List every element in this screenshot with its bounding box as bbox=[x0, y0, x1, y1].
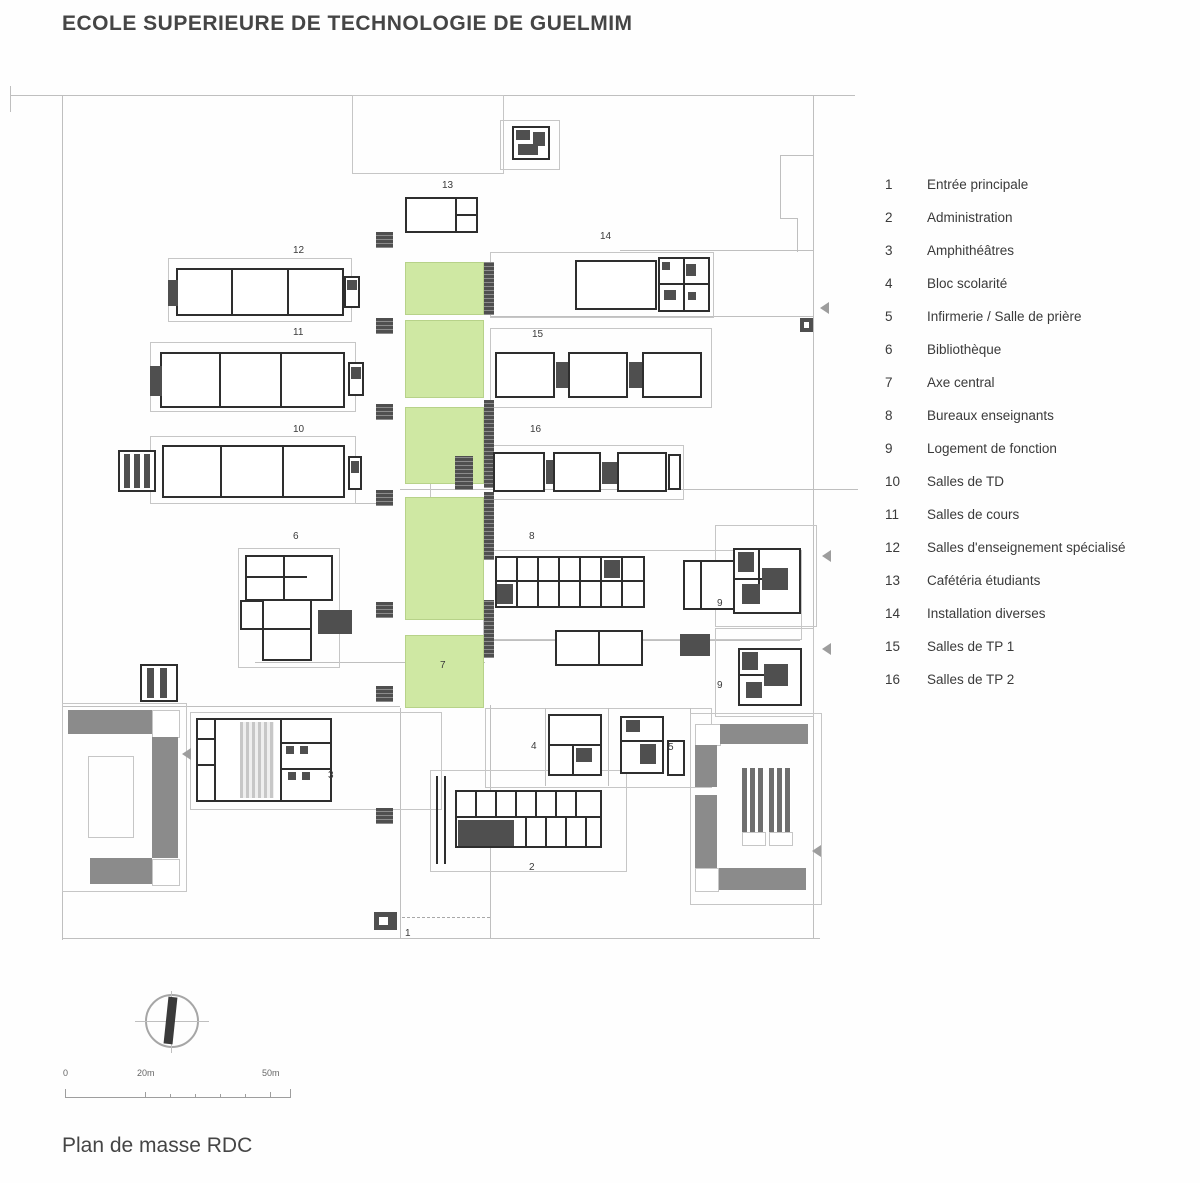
building-16-module bbox=[553, 452, 601, 492]
building-9a-room bbox=[738, 552, 754, 572]
step-line bbox=[780, 155, 781, 219]
building-6-dark-room bbox=[318, 610, 352, 634]
legend: 1Entrée principale 2Administration 3Amph… bbox=[885, 168, 1185, 696]
legend-item-label: Logement de fonction bbox=[927, 441, 1057, 456]
building-9a-room bbox=[742, 584, 760, 604]
legend-item-label: Salles d'enseignement spécialisé bbox=[927, 540, 1125, 555]
east-structure-bar bbox=[718, 868, 806, 890]
building-16-link bbox=[546, 460, 553, 484]
building-3-wall bbox=[282, 742, 330, 744]
entrance-gate-center bbox=[379, 917, 388, 925]
legend-item: 15Salles de TP 1 bbox=[885, 630, 1185, 663]
building-2-wall bbox=[457, 816, 600, 818]
building-label-11: 11 bbox=[293, 327, 303, 338]
building-5-room bbox=[626, 720, 640, 732]
entrance-dashed-line bbox=[402, 917, 490, 918]
building-14-room bbox=[664, 290, 676, 300]
scale-label-mid: 20m bbox=[137, 1068, 155, 1078]
building-8-wall bbox=[621, 558, 623, 606]
building-label-15: 15 bbox=[532, 329, 543, 340]
building-label-14: 14 bbox=[600, 231, 611, 242]
building-2-wall bbox=[515, 792, 517, 816]
legend-item-label: Salles de TD bbox=[927, 474, 1004, 489]
kiosk-bar bbox=[160, 668, 167, 698]
building-11-wall bbox=[280, 354, 282, 406]
legend-item-label: Bibliothèque bbox=[927, 342, 1001, 357]
legend-item-number: 6 bbox=[885, 342, 907, 357]
legend-item-label: Amphithéâtres bbox=[927, 243, 1014, 258]
building-label-7: 7 bbox=[440, 660, 446, 671]
scale-tick bbox=[270, 1092, 271, 1097]
east-structure-corner bbox=[695, 868, 719, 892]
building-12-core-fill bbox=[347, 280, 357, 290]
building-2-wall bbox=[495, 792, 497, 816]
building-15-module bbox=[495, 352, 555, 398]
building-label-16: 16 bbox=[530, 424, 541, 435]
building-3-wall bbox=[198, 738, 214, 740]
triangle-marker-icon bbox=[820, 302, 829, 314]
building-label-13: 13 bbox=[442, 180, 453, 191]
building-9a-room bbox=[762, 568, 788, 590]
scale-tick bbox=[290, 1089, 291, 1097]
building-8-wall bbox=[537, 558, 539, 606]
building-10-core-fill bbox=[351, 461, 359, 473]
west-structure-bar bbox=[152, 737, 178, 858]
legend-item: 11Salles de cours bbox=[885, 498, 1185, 531]
legend-item: 12Salles d'enseignement spécialisé bbox=[885, 531, 1185, 564]
building-6-room bbox=[240, 600, 264, 630]
step-line bbox=[797, 218, 798, 252]
legend-item-label: Salles de cours bbox=[927, 507, 1019, 522]
building-3-wall bbox=[280, 720, 282, 800]
legend-item-number: 5 bbox=[885, 309, 907, 324]
building-3-wall bbox=[282, 768, 330, 770]
building-8-wall bbox=[558, 558, 560, 606]
legend-item: 10Salles de TD bbox=[885, 465, 1185, 498]
building-2-wall bbox=[545, 818, 547, 846]
axis-node-square bbox=[376, 602, 393, 618]
step-line bbox=[780, 218, 798, 219]
legend-item-label: Installation diverses bbox=[927, 606, 1046, 621]
building-14-room bbox=[686, 264, 696, 276]
building-2-dark-room bbox=[458, 820, 514, 846]
legend-item: 9Logement de fonction bbox=[885, 432, 1185, 465]
west-structure-corner bbox=[152, 710, 180, 738]
scale-tick bbox=[195, 1094, 196, 1097]
legend-item-number: 12 bbox=[885, 540, 907, 555]
building-3-wall bbox=[198, 764, 214, 766]
building-6 bbox=[245, 555, 333, 601]
building-15-module bbox=[568, 352, 628, 398]
building-label-8: 8 bbox=[529, 531, 535, 542]
scale-tick bbox=[220, 1094, 221, 1097]
path-line bbox=[620, 250, 813, 251]
building-16-module bbox=[493, 452, 545, 492]
building-3-room bbox=[288, 772, 296, 780]
building-15-module bbox=[642, 352, 702, 398]
axis-node-square bbox=[376, 808, 393, 824]
east-structure-strip-end bbox=[769, 832, 793, 846]
building-2-wall bbox=[585, 818, 587, 846]
building-label-5: 5 bbox=[668, 742, 674, 753]
building-9b-room bbox=[742, 652, 758, 670]
legend-item: 1Entrée principale bbox=[885, 168, 1185, 201]
building-label-9a: 9 bbox=[717, 598, 723, 609]
triangle-marker-icon bbox=[822, 550, 831, 562]
east-structure-bar bbox=[695, 745, 717, 787]
building-label-4: 4 bbox=[531, 741, 537, 752]
east-structure-stripes bbox=[769, 768, 791, 840]
building-14-room bbox=[688, 292, 696, 300]
axis-green-block bbox=[405, 497, 484, 620]
axis-node-square bbox=[376, 232, 393, 248]
building-3-room bbox=[302, 772, 310, 780]
legend-item: 2Administration bbox=[885, 201, 1185, 234]
building-8-annex-room bbox=[680, 634, 710, 656]
kiosk-building bbox=[140, 664, 178, 702]
building-11-core bbox=[150, 366, 162, 396]
scale-tick bbox=[170, 1094, 171, 1097]
legend-item: 8Bureaux enseignants bbox=[885, 399, 1185, 432]
axis-node-square bbox=[376, 404, 393, 420]
axis-green-block bbox=[405, 635, 484, 708]
building-6-wall bbox=[247, 576, 307, 578]
building-8-room bbox=[604, 560, 620, 578]
axis-hatch-strip bbox=[484, 600, 494, 658]
boundary-line bbox=[62, 938, 820, 939]
legend-item: 7Axe central bbox=[885, 366, 1185, 399]
scale-tick bbox=[65, 1089, 66, 1097]
scale-label-end: 50m bbox=[262, 1068, 280, 1078]
building-9b-room bbox=[746, 682, 762, 698]
legend-item-number: 2 bbox=[885, 210, 907, 225]
legend-item-number: 11 bbox=[885, 507, 907, 522]
building-8-annex-wall bbox=[598, 632, 600, 664]
building-15-link bbox=[556, 362, 568, 388]
legend-item-number: 1 bbox=[885, 177, 907, 192]
sheet-caption: Plan de masse RDC bbox=[62, 1134, 252, 1158]
building-16-link bbox=[602, 462, 617, 484]
legend-item-label: Salles de TP 2 bbox=[927, 672, 1014, 687]
axis-hatch-strip bbox=[484, 492, 494, 560]
building-4-wall bbox=[572, 746, 574, 774]
legend-item: 5Infirmerie / Salle de prière bbox=[885, 300, 1185, 333]
building-3-room bbox=[300, 746, 308, 754]
building-12 bbox=[176, 268, 344, 316]
west-structure-bar bbox=[68, 710, 152, 734]
legend-item-label: Entrée principale bbox=[927, 177, 1028, 192]
scale-tick bbox=[145, 1092, 146, 1097]
sheet-title: ECOLE SUPERIEURE DE TECHNOLOGIE DE GUELM… bbox=[62, 12, 633, 36]
service-building-room bbox=[518, 144, 538, 155]
building-label-2: 2 bbox=[529, 862, 535, 873]
building-2-wall bbox=[555, 792, 557, 816]
building-11 bbox=[160, 352, 345, 408]
scale-tick bbox=[245, 1094, 246, 1097]
legend-item: 13Cafétéria étudiants bbox=[885, 564, 1185, 597]
building-2-wall bbox=[565, 818, 567, 846]
west-structure-corner bbox=[152, 859, 180, 886]
building-label-10: 10 bbox=[293, 424, 304, 435]
building-10-wall bbox=[220, 447, 222, 496]
legend-item-label: Cafétéria étudiants bbox=[927, 573, 1040, 588]
legend-item-label: Infirmerie / Salle de prière bbox=[927, 309, 1082, 324]
plan-sheet: ECOLE SUPERIEURE DE TECHNOLOGIE DE GUELM… bbox=[0, 0, 1200, 1183]
legend-item-label: Salles de TP 1 bbox=[927, 639, 1014, 654]
building-11-core-fill bbox=[351, 367, 361, 379]
legend-item-number: 8 bbox=[885, 408, 907, 423]
building-14-wall bbox=[660, 283, 708, 285]
building-2-wall bbox=[535, 792, 537, 816]
axis-hatch-strip bbox=[484, 262, 494, 315]
building-12-wall bbox=[231, 270, 233, 314]
axis-node-square bbox=[376, 490, 393, 506]
axis-node-square bbox=[376, 318, 393, 334]
building-label-9b: 9 bbox=[717, 680, 723, 691]
building-16-core bbox=[668, 454, 681, 490]
building-12-core bbox=[168, 280, 178, 306]
legend-item-number: 4 bbox=[885, 276, 907, 291]
axis-green-block bbox=[405, 320, 484, 398]
legend-item-number: 13 bbox=[885, 573, 907, 588]
legend-item-number: 16 bbox=[885, 672, 907, 687]
building-13-wall bbox=[457, 214, 476, 216]
legend-item-number: 7 bbox=[885, 375, 907, 390]
building-10-wall bbox=[282, 447, 284, 496]
parcel-outline bbox=[352, 95, 504, 174]
building-8-hall-wall bbox=[700, 562, 702, 608]
building-label-3: 3 bbox=[328, 770, 334, 781]
east-structure-strip-end bbox=[742, 832, 766, 846]
building-2-entry-wall bbox=[444, 776, 446, 864]
west-structure-bar bbox=[90, 858, 152, 884]
triangle-marker-icon bbox=[182, 748, 191, 760]
scale-baseline bbox=[65, 1097, 291, 1098]
boundary-line bbox=[10, 86, 11, 112]
building-2-wall bbox=[475, 792, 477, 816]
building-8-room bbox=[497, 584, 513, 604]
gate-marker-center bbox=[804, 322, 809, 328]
scale-label-zero: 0 bbox=[63, 1068, 68, 1078]
building-6-ext bbox=[262, 599, 312, 661]
legend-item-label: Bloc scolarité bbox=[927, 276, 1007, 291]
triangle-marker-icon bbox=[822, 643, 831, 655]
legend-item: 16Salles de TP 2 bbox=[885, 663, 1185, 696]
building-11-wall bbox=[219, 354, 221, 406]
building-9b-room bbox=[764, 664, 788, 686]
building-5-room bbox=[640, 744, 656, 764]
east-structure-bar bbox=[695, 795, 717, 869]
axis-node-square bbox=[376, 686, 393, 702]
building-6-ext-wall bbox=[264, 628, 310, 630]
building-4-wall bbox=[550, 744, 600, 746]
service-building-room bbox=[516, 130, 530, 140]
building-3-room bbox=[286, 746, 294, 754]
building-2-wall bbox=[575, 792, 577, 816]
legend-item-label: Administration bbox=[927, 210, 1013, 225]
building-4-room bbox=[576, 748, 592, 762]
legend-item-number: 9 bbox=[885, 441, 907, 456]
axis-green-block bbox=[405, 262, 484, 315]
building-12-wall bbox=[287, 270, 289, 314]
building-6-wall bbox=[283, 557, 285, 599]
building-10-annex-bar bbox=[144, 454, 150, 488]
legend-item-label: Axe central bbox=[927, 375, 995, 390]
kiosk-bar bbox=[147, 668, 154, 698]
legend-item-number: 3 bbox=[885, 243, 907, 258]
building-2-wall bbox=[525, 818, 527, 846]
building-10-annex-bar bbox=[124, 454, 130, 488]
legend-item-number: 15 bbox=[885, 639, 907, 654]
legend-item: 3Amphithéâtres bbox=[885, 234, 1185, 267]
building-10 bbox=[162, 445, 345, 498]
building-16-module bbox=[617, 452, 667, 492]
building-3-wall bbox=[214, 720, 216, 800]
building-15-link bbox=[629, 362, 642, 388]
building-label-1: 1 bbox=[405, 928, 411, 939]
step-line bbox=[780, 155, 814, 156]
legend-item: 4Bloc scolarité bbox=[885, 267, 1185, 300]
building-2-entry-wall bbox=[436, 776, 438, 864]
building-8-wall bbox=[600, 558, 602, 606]
legend-item-number: 14 bbox=[885, 606, 907, 621]
legend-item: 14Installation diverses bbox=[885, 597, 1185, 630]
west-structure-court bbox=[88, 756, 134, 838]
building-label-12: 12 bbox=[293, 245, 304, 256]
building-10-annex-bar bbox=[134, 454, 140, 488]
east-structure-stripes bbox=[742, 768, 764, 840]
building-3-seating bbox=[240, 722, 274, 798]
building-5-wall bbox=[622, 740, 662, 742]
east-structure-bar bbox=[720, 724, 808, 744]
building-label-6: 6 bbox=[293, 531, 299, 542]
building-14-room bbox=[662, 262, 670, 270]
legend-item-number: 10 bbox=[885, 474, 907, 489]
building-14 bbox=[575, 260, 657, 310]
legend-item: 6Bibliothèque bbox=[885, 333, 1185, 366]
building-16-core bbox=[455, 456, 473, 490]
building-8-wall bbox=[579, 558, 581, 606]
east-structure-corner bbox=[695, 724, 721, 746]
legend-item-label: Bureaux enseignants bbox=[927, 408, 1054, 423]
building-8-wall bbox=[516, 558, 518, 606]
